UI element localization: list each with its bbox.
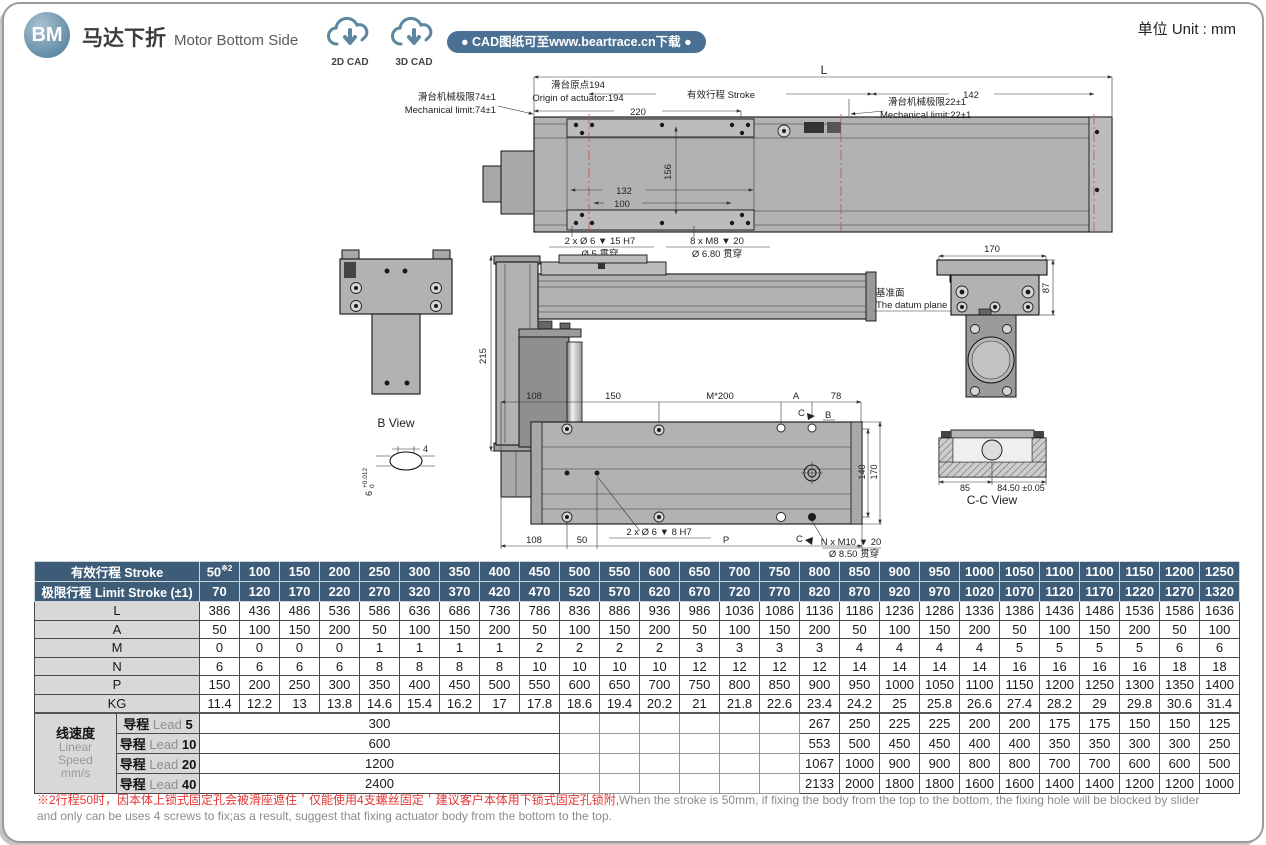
table-cell: 27.4 xyxy=(1000,694,1040,713)
speed-cell: 300 xyxy=(1160,734,1200,754)
limit-header-cell: 1220 xyxy=(1120,582,1160,602)
limit-header-cell: 1120 xyxy=(1040,582,1080,602)
speed-cell: 1200 xyxy=(1160,774,1200,794)
table-cell: 750 xyxy=(680,676,720,695)
speed-cell: 1000 xyxy=(840,754,880,774)
table-cell: 486 xyxy=(280,602,320,621)
stroke-header-cell: 450 xyxy=(520,562,560,582)
stroke-header-cell: 1050 xyxy=(1000,562,1040,582)
dim-m200: M*200 xyxy=(706,391,733,402)
limit-right-zh: 滑台机械极限22±1 xyxy=(888,96,966,108)
table-cell: 1300 xyxy=(1120,676,1160,695)
speed-merged-cell: 600 xyxy=(200,734,560,754)
stroke-header-cell: 300 xyxy=(400,562,440,582)
speed-cell: 350 xyxy=(1040,734,1080,754)
table-cell: 14 xyxy=(840,657,880,676)
stroke-header-cell: 1000 xyxy=(960,562,1000,582)
table-cell: 5 xyxy=(1040,639,1080,658)
speed-empty-cell xyxy=(600,774,640,794)
speed-cell: 800 xyxy=(1000,754,1040,774)
table-cell: 536 xyxy=(320,602,360,621)
table-cell: 12 xyxy=(680,657,720,676)
table-cell: 350 xyxy=(360,676,400,695)
section-c-top: C xyxy=(798,408,805,419)
limit-header-cell: 1320 xyxy=(1200,582,1240,602)
m8-callout-1: 8 x M8 ▼ 20 xyxy=(690,236,744,247)
dim-label-100: 100 xyxy=(614,199,630,210)
stroke-header-cell: 500 xyxy=(560,562,600,582)
table-cell: 16.2 xyxy=(440,694,480,713)
lead-label-40: 导程 Lead 40 xyxy=(117,774,200,794)
table-cell: 24.2 xyxy=(840,694,880,713)
b-view-title: B View xyxy=(377,416,414,430)
table-cell: 4 xyxy=(880,639,920,658)
table-cell: 0 xyxy=(320,639,360,658)
table-cell: 300 xyxy=(320,676,360,695)
table-cell: 700 xyxy=(640,676,680,695)
speed-cell: 1600 xyxy=(1000,774,1040,794)
speed-cell: 300 xyxy=(1120,734,1160,754)
table-cell: 100 xyxy=(1040,620,1080,639)
table-cell: 3 xyxy=(720,639,760,658)
page-title: 马达下折Motor Bottom Side xyxy=(82,22,298,52)
table-cell: 50 xyxy=(1160,620,1200,639)
stroke-dim-label: 有效行程 Stroke xyxy=(687,89,755,101)
speed-cell: 2133 xyxy=(800,774,840,794)
front-t-view: B View xyxy=(340,250,452,430)
table-cell: 1 xyxy=(480,639,520,658)
speed-empty-cell xyxy=(600,754,640,774)
pin-callout-1: 2 x Ø 6 ▼ 15 H7 xyxy=(565,236,636,247)
dim-8450: 84.50 ±0.05 xyxy=(997,483,1044,493)
table-cell: 2 xyxy=(520,639,560,658)
limit-header-cell: 70 xyxy=(200,582,240,602)
table-cell: 0 xyxy=(240,639,280,658)
dim-label-L: L xyxy=(821,63,828,77)
speed-merged-cell: 1200 xyxy=(200,754,560,774)
stroke-header-cell: 1150 xyxy=(1120,562,1160,582)
speed-empty-cell xyxy=(760,754,800,774)
table-cell: 10 xyxy=(640,657,680,676)
end-view: 170 87 xyxy=(937,244,1055,397)
datum-label-zh: 基准面 xyxy=(876,287,905,299)
dim-label-132: 132 xyxy=(616,186,632,197)
row-label-m: M xyxy=(35,639,200,658)
speed-cell: 600 xyxy=(1160,754,1200,774)
dim-108-top: 108 xyxy=(526,391,542,402)
limit-header-label: 极限行程 Limit Stroke (±1) xyxy=(35,582,200,602)
speed-cell: 500 xyxy=(840,734,880,754)
speed-cell: 125 xyxy=(1200,713,1240,734)
table-cell: 450 xyxy=(440,676,480,695)
table-cell: 1286 xyxy=(920,602,960,621)
cc-view-title: C-C View xyxy=(967,493,1018,507)
speed-cell: 225 xyxy=(880,713,920,734)
limit-header-cell: 1020 xyxy=(960,582,1000,602)
dim-p: P xyxy=(723,535,729,546)
table-cell: 22.6 xyxy=(760,694,800,713)
speed-cell: 700 xyxy=(1040,754,1080,774)
table-cell: 786 xyxy=(520,602,560,621)
row-label-p: P xyxy=(35,676,200,695)
table-cell: 200 xyxy=(1120,620,1160,639)
table-cell: 150 xyxy=(440,620,480,639)
stroke-header-cell: 800 xyxy=(800,562,840,582)
dim-a: A xyxy=(793,391,800,402)
speed-empty-cell xyxy=(680,774,720,794)
row-label-a: A xyxy=(35,620,200,639)
table-cell: 17.8 xyxy=(520,694,560,713)
table-cell: 29.8 xyxy=(1120,694,1160,713)
table-cell: 0 xyxy=(280,639,320,658)
table-cell: 11.4 xyxy=(200,694,240,713)
table-cell: 1136 xyxy=(800,602,840,621)
speed-cell: 553 xyxy=(800,734,840,754)
speed-cell: 450 xyxy=(920,734,960,754)
lead-label-20: 导程 Lead 20 xyxy=(117,754,200,774)
b-view-dim-4: 4 xyxy=(423,444,428,454)
table-cell: 2 xyxy=(560,639,600,658)
table-cell: 550 xyxy=(520,676,560,695)
table-cell: 31.4 xyxy=(1200,694,1240,713)
table-cell: 900 xyxy=(800,676,840,695)
title-zh: 马达下折 xyxy=(82,27,166,50)
table-cell: 600 xyxy=(560,676,600,695)
table-cell: 50 xyxy=(1000,620,1040,639)
speed-cell: 1000 xyxy=(1200,774,1240,794)
stroke-header-cell: 550 xyxy=(600,562,640,582)
table-cell: 950 xyxy=(840,676,880,695)
table-cell: 6 xyxy=(320,657,360,676)
speed-empty-cell xyxy=(560,713,600,734)
limit-header-cell: 420 xyxy=(480,582,520,602)
table-cell: 1586 xyxy=(1160,602,1200,621)
table-cell: 150 xyxy=(920,620,960,639)
table-cell: 10 xyxy=(520,657,560,676)
speed-empty-cell xyxy=(720,713,760,734)
table-cell: 30.6 xyxy=(1160,694,1200,713)
limit-header-cell: 670 xyxy=(680,582,720,602)
speed-cell: 450 xyxy=(880,734,920,754)
top-plan-view: L 滑台原点194 Origin of actuator:194 有效行程 St… xyxy=(405,63,1264,260)
limit-header-cell: 820 xyxy=(800,582,840,602)
cloud-download-icon xyxy=(387,16,441,54)
table-cell: 636 xyxy=(400,602,440,621)
table-cell: 0 xyxy=(200,639,240,658)
unit-label: 单位 Unit : mm xyxy=(1138,18,1236,39)
table-cell: 12.2 xyxy=(240,694,280,713)
table-cell: 10 xyxy=(560,657,600,676)
table-cell: 736 xyxy=(480,602,520,621)
table-cell: 6 xyxy=(1160,639,1200,658)
table-cell: 6 xyxy=(280,657,320,676)
speed-empty-cell xyxy=(760,774,800,794)
speed-cell: 175 xyxy=(1080,713,1120,734)
table-cell: 16 xyxy=(1000,657,1040,676)
table-cell: 8 xyxy=(480,657,520,676)
table-cell: 25.8 xyxy=(920,694,960,713)
table-cell: 50 xyxy=(360,620,400,639)
table-cell: 17 xyxy=(480,694,520,713)
row-label-n: N xyxy=(35,657,200,676)
table-cell: 100 xyxy=(880,620,920,639)
table-cell: 12 xyxy=(800,657,840,676)
table-cell: 18 xyxy=(1200,657,1240,676)
origin-label-en: Origin of actuator:194 xyxy=(532,93,623,104)
table-cell: 3 xyxy=(800,639,840,658)
table-cell: 586 xyxy=(360,602,400,621)
stroke-header-cell: 600 xyxy=(640,562,680,582)
origin-label-zh: 滑台原点194 xyxy=(551,79,605,91)
stroke-header-cell: 1100 xyxy=(1040,562,1080,582)
row-label-l: L xyxy=(35,602,200,621)
table-cell: 28.2 xyxy=(1040,694,1080,713)
limit-header-cell: 620 xyxy=(640,582,680,602)
table-cell: 150 xyxy=(600,620,640,639)
table-cell: 12 xyxy=(760,657,800,676)
table-cell: 21.8 xyxy=(720,694,760,713)
footnote-en2: and only can be uses 4 screws to fix;as … xyxy=(37,809,1199,825)
table-cell: 1186 xyxy=(840,602,880,621)
dim-50: 50 xyxy=(577,535,588,546)
b-view-detail: 4 6 +0.012 0 xyxy=(362,444,435,496)
table-cell: 12 xyxy=(720,657,760,676)
table-cell: 1050 xyxy=(920,676,960,695)
table-cell: 18.6 xyxy=(560,694,600,713)
speed-cell: 1200 xyxy=(1120,774,1160,794)
limit-header-cell: 220 xyxy=(320,582,360,602)
table-cell: 16 xyxy=(1040,657,1080,676)
table-cell: 1250 xyxy=(1080,676,1120,695)
speed-cell: 600 xyxy=(1120,754,1160,774)
page-card: BM 马达下折Motor Bottom Side 2D CAD 3D CAD ●… xyxy=(2,2,1264,843)
table-cell: 2 xyxy=(600,639,640,658)
speed-empty-cell xyxy=(680,734,720,754)
table-cell: 5 xyxy=(1000,639,1040,658)
table-cell: 14 xyxy=(920,657,960,676)
speed-cell: 400 xyxy=(960,734,1000,754)
table-cell: 436 xyxy=(240,602,280,621)
speed-cell: 2000 xyxy=(840,774,880,794)
table-cell: 13.8 xyxy=(320,694,360,713)
speed-cell: 900 xyxy=(920,754,960,774)
table-cell: 400 xyxy=(400,676,440,695)
limit-header-cell: 570 xyxy=(600,582,640,602)
speed-empty-cell xyxy=(680,754,720,774)
m10-callout-2: Ø 8.50 贯穿 xyxy=(829,548,879,559)
cc-section-view: 85 84.50 ±0.05 C-C View xyxy=(939,430,1046,507)
dim-170-bottom: 170 xyxy=(869,464,879,479)
b-view-tol-zero: 0 xyxy=(369,484,376,488)
stroke-header-cell: 1200 xyxy=(1160,562,1200,582)
table-cell: 150 xyxy=(280,620,320,639)
speed-cell: 1600 xyxy=(960,774,1000,794)
table-cell: 4 xyxy=(920,639,960,658)
table-cell: 100 xyxy=(720,620,760,639)
table-cell: 3 xyxy=(680,639,720,658)
dim-label-170-end: 170 xyxy=(984,244,1000,255)
table-cell: 1336 xyxy=(960,602,1000,621)
speed-empty-cell xyxy=(640,774,680,794)
speed-cell: 1400 xyxy=(1040,774,1080,794)
table-cell: 1236 xyxy=(880,602,920,621)
limit-left-zh: 滑台机械极限74±1 xyxy=(418,91,496,103)
speed-cell: 250 xyxy=(840,713,880,734)
bm-badge: BM xyxy=(24,12,70,58)
stroke-header-cell: 350 xyxy=(440,562,480,582)
table-cell: 8 xyxy=(360,657,400,676)
speed-empty-cell xyxy=(640,713,680,734)
cad-download-banner-link[interactable]: ● CAD图纸可至www.beartrace.cn下载 ● xyxy=(447,31,706,53)
table-cell: 6 xyxy=(1200,639,1240,658)
stroke-header-cell: 850 xyxy=(840,562,880,582)
table-cell: 1086 xyxy=(760,602,800,621)
table-cell: 4 xyxy=(840,639,880,658)
table-cell: 800 xyxy=(720,676,760,695)
table-cell: 686 xyxy=(440,602,480,621)
speed-merged-cell: 300 xyxy=(200,713,560,734)
table-cell: 1 xyxy=(360,639,400,658)
bottom-pin-callout: 2 x Ø 6 ▼ 8 H7 xyxy=(626,527,691,538)
speed-merged-cell: 2400 xyxy=(200,774,560,794)
speed-cell: 200 xyxy=(1000,713,1040,734)
table-cell: 150 xyxy=(200,676,240,695)
table-cell: 1436 xyxy=(1040,602,1080,621)
speed-cell: 400 xyxy=(1000,734,1040,754)
table-cell: 25 xyxy=(880,694,920,713)
m10-callout-1: N x M10 ▼ 20 xyxy=(821,537,882,548)
lead-label-5: 导程 Lead 5 xyxy=(117,713,200,734)
stroke-header-cell: 1100 xyxy=(1080,562,1120,582)
stroke-header-cell: 900 xyxy=(880,562,920,582)
m8-callout-2: Ø 6.80 贯穿 xyxy=(692,248,742,260)
limit-header-cell: 1070 xyxy=(1000,582,1040,602)
limit-header-cell: 770 xyxy=(760,582,800,602)
speed-cell: 150 xyxy=(1120,713,1160,734)
table-cell: 1350 xyxy=(1160,676,1200,695)
table-cell: 20.2 xyxy=(640,694,680,713)
stroke-header-cell: 150 xyxy=(280,562,320,582)
footnote-line1: ※2行程50时，因本体上锁式固定孔会被滑座遮住＇仅能使用4支螺丝固定＇建议客户本… xyxy=(37,793,1199,809)
footnote-zh: ※2行程50时，因本体上锁式固定孔会被滑座遮住＇仅能使用4支螺丝固定＇建议客户本… xyxy=(37,793,619,807)
speed-cell: 250 xyxy=(1200,734,1240,754)
speed-cell: 900 xyxy=(880,754,920,774)
speed-cell: 200 xyxy=(960,713,1000,734)
limit-right-en: Mechanical limit:22±1 xyxy=(880,110,971,121)
limit-header-cell: 170 xyxy=(280,582,320,602)
speed-empty-cell xyxy=(720,734,760,754)
table-cell: 100 xyxy=(1200,620,1240,639)
speed-empty-cell xyxy=(560,754,600,774)
dim-label-87: 87 xyxy=(1041,283,1052,294)
speed-empty-cell xyxy=(640,754,680,774)
stroke-header-cell: 50※2 xyxy=(200,562,240,582)
table-cell: 19.4 xyxy=(600,694,640,713)
table-cell: 26.6 xyxy=(960,694,1000,713)
speed-empty-cell xyxy=(560,734,600,754)
limit-header-cell: 870 xyxy=(840,582,880,602)
speed-cell: 150 xyxy=(1160,713,1200,734)
speed-cell: 800 xyxy=(960,754,1000,774)
limit-header-cell: 920 xyxy=(880,582,920,602)
speed-cell: 225 xyxy=(920,713,960,734)
linear-speed-label: 线速度LinearSpeedmm/s xyxy=(35,713,117,794)
dim-150: 150 xyxy=(605,391,621,402)
footnote: ※2行程50时，因本体上锁式固定孔会被滑座遮住＇仅能使用4支螺丝固定＇建议客户本… xyxy=(37,793,1199,824)
stroke-header-cell: 950 xyxy=(920,562,960,582)
speed-cell: 350 xyxy=(1080,734,1120,754)
stroke-header-cell: 650 xyxy=(680,562,720,582)
speed-cell: 1800 xyxy=(880,774,920,794)
table-cell: 50 xyxy=(840,620,880,639)
stroke-header-cell: 750 xyxy=(760,562,800,582)
table-cell: 3 xyxy=(760,639,800,658)
b-view-dim-6: 6 xyxy=(364,491,374,496)
table-cell: 936 xyxy=(640,602,680,621)
table-cell: 836 xyxy=(560,602,600,621)
table-cell: 1386 xyxy=(1000,602,1040,621)
table-cell: 1536 xyxy=(1120,602,1160,621)
dim-108-bottom: 108 xyxy=(526,535,542,546)
table-cell: 100 xyxy=(400,620,440,639)
limit-header-cell: 120 xyxy=(240,582,280,602)
limit-header-cell: 470 xyxy=(520,582,560,602)
stroke-header-cell: 1250 xyxy=(1200,562,1240,582)
stroke-header-label: 有效行程 Stroke xyxy=(35,562,200,582)
stroke-header-cell: 700 xyxy=(720,562,760,582)
speed-cell: 175 xyxy=(1040,713,1080,734)
speed-empty-cell xyxy=(600,734,640,754)
dim-label-215: 215 xyxy=(478,348,489,364)
dim-label-220: 220 xyxy=(630,107,646,118)
table-cell: 6 xyxy=(240,657,280,676)
limit-header-cell: 970 xyxy=(920,582,960,602)
table-cell: 4 xyxy=(960,639,1000,658)
table-cell: 1036 xyxy=(720,602,760,621)
speed-empty-cell xyxy=(760,713,800,734)
table-cell: 2 xyxy=(640,639,680,658)
table-cell: 16 xyxy=(1120,657,1160,676)
spec-table: 有效行程 Stroke50※21001502002503003504004505… xyxy=(34,561,1240,794)
table-cell: 1636 xyxy=(1200,602,1240,621)
speed-cell: 500 xyxy=(1200,754,1240,774)
speed-empty-cell xyxy=(760,734,800,754)
speed-empty-cell xyxy=(720,754,760,774)
table-cell: 500 xyxy=(480,676,520,695)
table-cell: 21 xyxy=(680,694,720,713)
table-cell: 14.6 xyxy=(360,694,400,713)
table-cell: 200 xyxy=(240,676,280,695)
view-b-mark: B xyxy=(825,410,831,421)
limit-header-cell: 720 xyxy=(720,582,760,602)
table-cell: 13 xyxy=(280,694,320,713)
table-cell: 100 xyxy=(560,620,600,639)
table-cell: 886 xyxy=(600,602,640,621)
table-cell: 200 xyxy=(800,620,840,639)
table-cell: 150 xyxy=(1080,620,1120,639)
technical-drawings: L 滑台原点194 Origin of actuator:194 有效行程 St… xyxy=(4,57,1264,559)
speed-empty-cell xyxy=(640,734,680,754)
table-cell: 650 xyxy=(600,676,640,695)
table-cell: 200 xyxy=(320,620,360,639)
section-c-bottom: C xyxy=(796,534,803,545)
speed-cell: 1800 xyxy=(920,774,960,794)
limit-header-cell: 320 xyxy=(400,582,440,602)
table-cell: 1486 xyxy=(1080,602,1120,621)
table-cell: 100 xyxy=(240,620,280,639)
speed-empty-cell xyxy=(680,713,720,734)
speed-empty-cell xyxy=(560,774,600,794)
